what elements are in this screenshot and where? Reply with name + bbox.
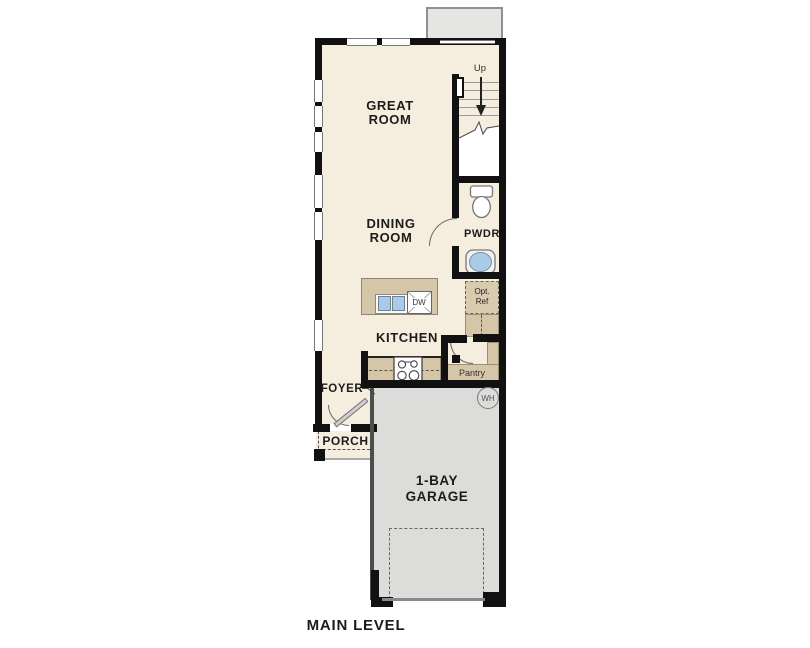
stair-rail-post [455, 77, 464, 98]
window [314, 175, 323, 208]
wall-garage-bottom-right [483, 592, 506, 607]
sink-basin [392, 296, 405, 311]
dining-room-label: DINING ROOM [346, 216, 436, 246]
stair-tread [459, 82, 499, 83]
stairs-up-label: Up [466, 62, 494, 75]
garage-label: 1-BAY GARAGE [392, 471, 482, 507]
great-room-label: GREAT ROOM [345, 98, 435, 128]
counter-divider [481, 315, 482, 336]
wall-pantry-top [473, 334, 499, 342]
powder-room-label: PWDR [452, 227, 512, 241]
foyer-label: FOYER [318, 382, 366, 396]
wall-right [499, 38, 506, 607]
stair-break-line [459, 120, 499, 176]
window [314, 320, 323, 351]
wall-garage-left [370, 388, 374, 600]
window [347, 38, 377, 46]
wall-stairs-powder [452, 176, 506, 183]
floor-plan: Up DW Opt. Ref Pantry [0, 0, 810, 648]
stair-up-arrow-icon [480, 77, 482, 107]
wall-powder-left-upper [452, 183, 459, 218]
window [382, 38, 410, 46]
toilet-icon [469, 184, 495, 220]
dishwasher-label: DW [405, 296, 433, 308]
porch-post [314, 449, 325, 461]
island-sink-icon [375, 294, 408, 314]
opt-ref-label: Opt. Ref [465, 285, 499, 309]
bay-bumpout [426, 7, 503, 40]
window [314, 212, 323, 240]
wall-powder-bottom [452, 272, 506, 279]
wall-foyer-bottom-left [313, 424, 330, 432]
window [314, 106, 323, 127]
plan-title: MAIN LEVEL [300, 617, 412, 635]
stair-up-arrowhead-icon [476, 105, 486, 116]
porch-label: PORCH [318, 433, 373, 448]
pantry-label: Pantry [445, 366, 499, 379]
garage-door-opening [389, 528, 484, 599]
porch-dashed-line [318, 449, 370, 450]
garage-door [382, 598, 485, 601]
pantry-shelf-right [487, 342, 499, 365]
wall-powder-left-lower [452, 246, 459, 272]
window [440, 40, 495, 44]
window [314, 132, 323, 152]
sink-basin [378, 296, 391, 311]
kitchen-label: KITCHEN [362, 330, 452, 346]
stair-tread [459, 99, 499, 100]
stair-tread [459, 90, 499, 91]
water-heater-icon: WH [477, 387, 499, 409]
window [314, 80, 323, 102]
wall-pantry-stub [452, 355, 460, 363]
